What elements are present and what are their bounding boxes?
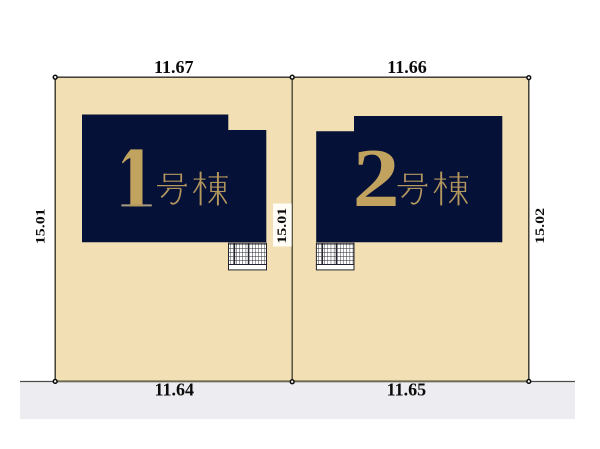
svg-text:11.64: 11.64 — [154, 380, 194, 400]
svg-text:11.67: 11.67 — [154, 57, 194, 77]
svg-text:11.66: 11.66 — [387, 57, 427, 77]
svg-text:11.65: 11.65 — [387, 380, 427, 400]
svg-text:15.01: 15.01 — [275, 208, 289, 244]
svg-text:15.01: 15.01 — [34, 208, 48, 244]
svg-text:15.02: 15.02 — [533, 208, 547, 244]
svg-text:2: 2 — [353, 132, 400, 224]
